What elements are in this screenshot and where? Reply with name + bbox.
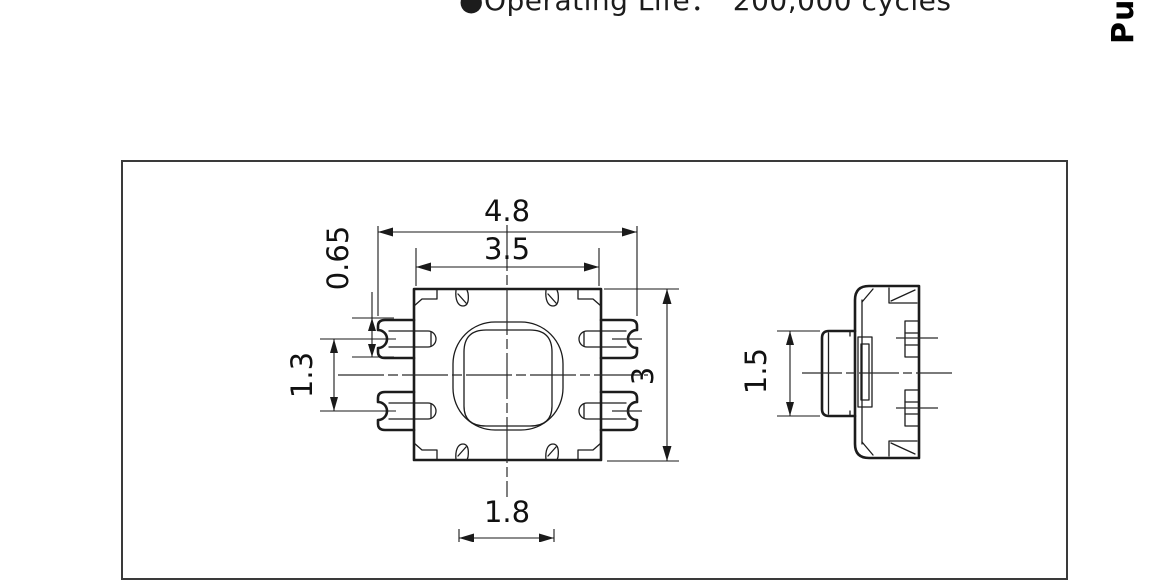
- dim-label-terminal-pitch: 1.3: [285, 352, 319, 398]
- centerlines-side-view: [802, 338, 952, 408]
- dim-label-overall-width: 4.8: [484, 194, 530, 228]
- button-top: [453, 322, 563, 430]
- dim-label-notch-pitch: 1.8: [484, 495, 530, 529]
- switch-body-side: [855, 286, 919, 458]
- dimension-1-8: 1.8: [459, 495, 554, 542]
- dimension-0-65: 0.65: [321, 226, 394, 357]
- dim-label-body-depth: 3: [626, 367, 660, 385]
- dim-label-button-height: 1.5: [739, 348, 773, 394]
- side-view-drawing: [802, 286, 952, 458]
- datasheet-page: { "spec_line": { "bullet": "●", "label":…: [0, 0, 1150, 542]
- side-view-details: [850, 288, 919, 456]
- dim-label-cover-width: 3.5: [484, 232, 530, 266]
- dim-label-terminal-width: 0.65: [321, 226, 355, 291]
- dimension-drawing: 4.8 3.5 0.65 1.3 3 1.8 1.5: [0, 0, 1150, 542]
